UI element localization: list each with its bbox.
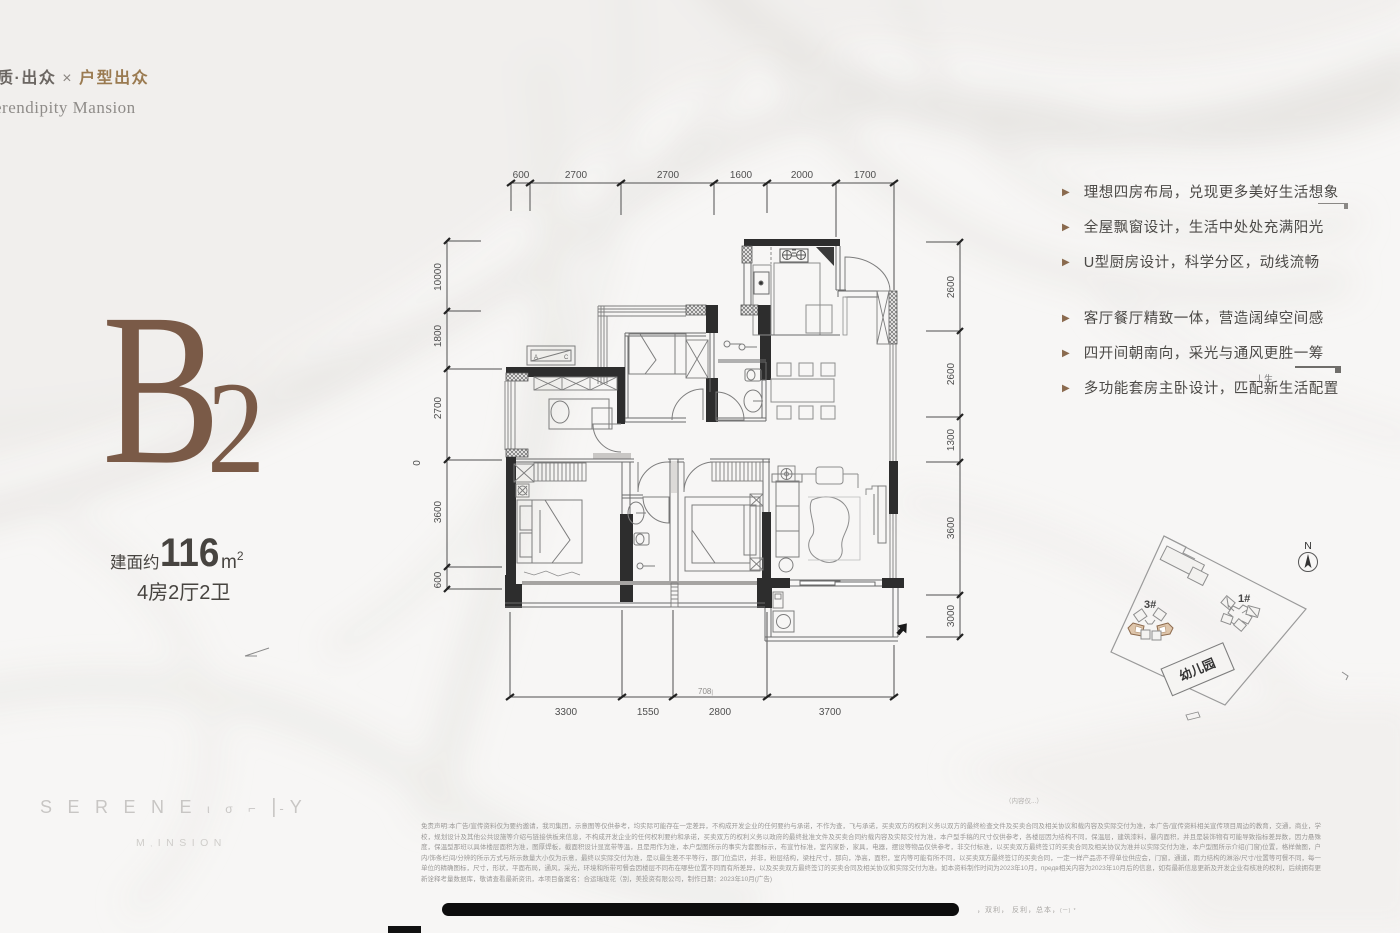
svg-text:C: C [564,355,569,361]
svg-text:600: 600 [513,170,530,181]
svg-text:2700: 2700 [565,170,588,181]
svg-text:1700: 1700 [854,170,877,181]
svg-text:1600: 1600 [730,170,753,181]
svg-text:3300: 3300 [555,707,578,718]
svg-text:1800: 1800 [433,324,444,347]
svg-text:2000: 2000 [791,170,814,181]
svg-text:3000: 3000 [946,604,957,627]
svg-text:2700: 2700 [657,170,680,181]
svg-text:3#: 3# [1144,599,1156,611]
svg-text:2600: 2600 [946,362,957,385]
svg-text:600: 600 [433,571,444,588]
svg-text:2700: 2700 [433,396,444,419]
svg-text:0: 0 [412,460,423,466]
svg-text:3600: 3600 [946,516,957,539]
svg-text:2800: 2800 [709,707,732,718]
svg-text:1#: 1# [1238,593,1250,605]
svg-text:2600: 2600 [946,275,957,298]
svg-text:10000: 10000 [433,263,444,291]
svg-text:3700: 3700 [819,707,842,718]
svg-text:N: N [1304,540,1312,552]
svg-text:A: A [534,355,538,361]
svg-text:1300: 1300 [946,428,957,451]
svg-text:3600: 3600 [433,500,444,523]
svg-text:1550: 1550 [637,707,660,718]
